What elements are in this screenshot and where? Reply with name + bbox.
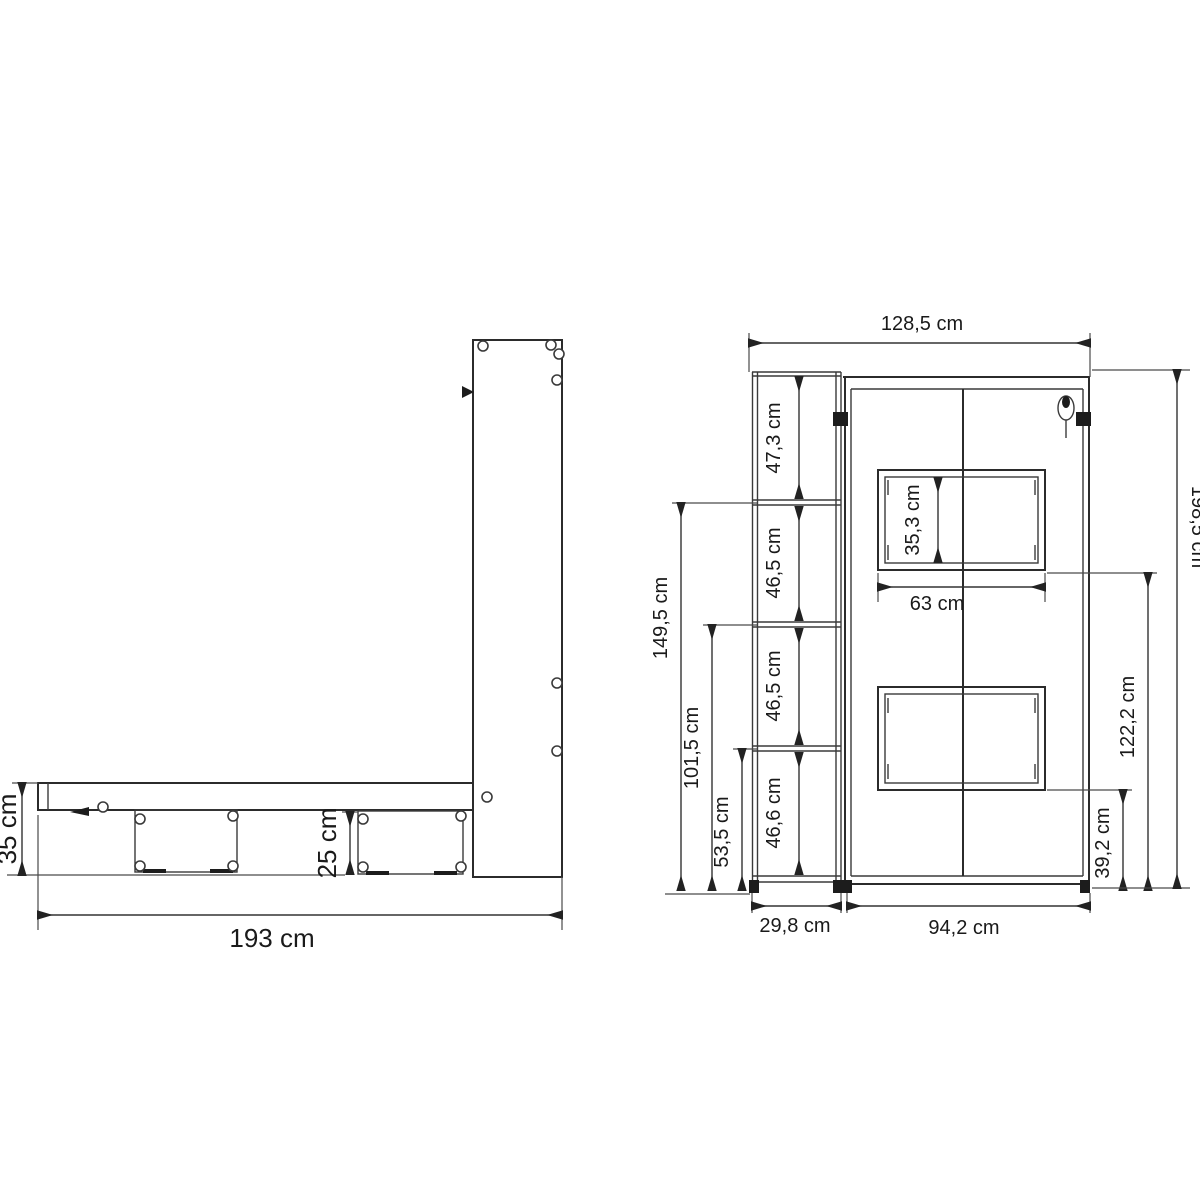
dim-label-panel-width: 63 cm	[910, 593, 964, 615]
cabinet	[833, 377, 1091, 893]
screw-holes	[98, 340, 564, 872]
bed-leg-left	[135, 810, 237, 872]
dim-label-shelf-section-2: 46,5 cm	[763, 527, 785, 598]
dimension-upper-panel-height: 35,3 cm	[902, 478, 938, 562]
front-view: 128,5 cm 47,3 cm 46,5 cm 46,5 cm 46,6 cm…	[650, 313, 1200, 939]
dimension-panel-width: 63 cm	[878, 573, 1045, 615]
shelf-foot	[833, 880, 843, 893]
foot-pad	[366, 871, 389, 875]
dimension-bottom-widths: 29,8 cm 94,2 cm	[752, 893, 1090, 939]
cabinet-foot	[842, 880, 852, 893]
dim-label-cabinet-width: 94,2 cm	[928, 917, 999, 939]
shelf-foot	[749, 880, 759, 893]
dim-label-level-mid: 101,5 cm	[681, 707, 703, 789]
dim-label-level-low: 53,5 cm	[711, 796, 733, 867]
dim-label-total-height: 198,5 cm	[1187, 486, 1200, 568]
dim-label-shelf-section-3: 46,5 cm	[763, 650, 785, 721]
dim-label-upper-panel-height: 35,3 cm	[902, 484, 924, 555]
side-view: 35 cm 25 cm 193 cm	[0, 340, 564, 953]
foot-pad	[143, 869, 166, 873]
datum-arrow-platform	[70, 807, 89, 816]
furniture-dimension-diagram: 35 cm 25 cm 193 cm	[0, 0, 1200, 1200]
dim-label-bed-height: 35 cm	[0, 794, 22, 865]
knob-icon	[1058, 396, 1074, 438]
dim-label-shelf-section-4: 46,6 cm	[763, 777, 785, 848]
dim-label-total-length: 193 cm	[229, 923, 314, 953]
dim-label-level-top: 149,5 cm	[650, 577, 672, 659]
technical-drawing-page: 35 cm 25 cm 193 cm	[0, 0, 1200, 1200]
foot-pad	[434, 871, 457, 875]
hinge-left	[833, 412, 848, 426]
dim-label-shelf-unit-width: 29,8 cm	[759, 915, 830, 937]
dimension-shelf-levels: 149,5 cm 101,5 cm 53,5 cm	[650, 503, 757, 894]
dim-label-total-width: 128,5 cm	[881, 313, 963, 335]
cabinet-foot	[1080, 880, 1090, 893]
dim-label-leg-height: 25 cm	[312, 808, 342, 879]
dimension-shelf-sections: 47,3 cm 46,5 cm 46,5 cm 46,6 cm	[763, 377, 799, 874]
dimension-leg-height: 25 cm	[312, 808, 358, 879]
dimension-total-length: 193 cm	[38, 815, 562, 953]
bed-leg-right	[358, 811, 463, 874]
dim-label-lower-panel-floor: 39,2 cm	[1092, 807, 1114, 878]
lower-panel	[878, 687, 1045, 790]
dim-label-upper-panel-floor: 122,2 cm	[1117, 676, 1139, 758]
hinge-right	[1076, 412, 1091, 426]
dim-label-shelf-section-1: 47,3 cm	[763, 402, 785, 473]
dimension-bed-height: 35 cm	[0, 783, 345, 875]
dimension-total-width: 128,5 cm	[749, 313, 1090, 377]
